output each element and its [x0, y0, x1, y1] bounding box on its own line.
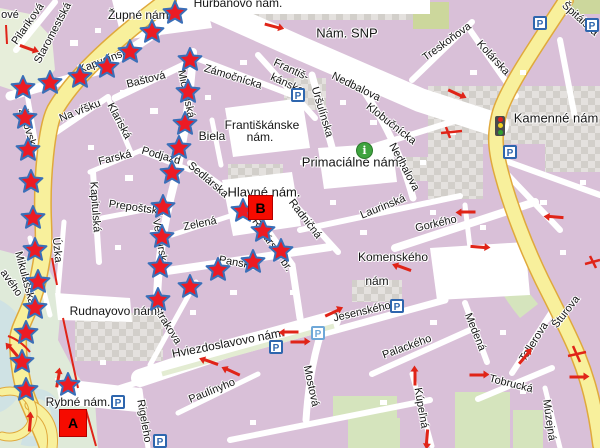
map-label: nám.	[247, 130, 274, 144]
star-marker-icon[interactable]	[147, 254, 173, 280]
star-marker-icon[interactable]	[37, 70, 63, 96]
route-marker-a[interactable]: A	[59, 409, 87, 437]
parking-icon[interactable]: P	[291, 88, 305, 102]
map-label: nám	[365, 274, 388, 288]
map-label: Nám. SNP	[316, 26, 377, 41]
parking-icon[interactable]: P	[311, 326, 325, 340]
star-marker-icon[interactable]	[177, 274, 203, 300]
star-marker-icon[interactable]	[12, 105, 38, 131]
parking-icon[interactable]: P	[585, 18, 599, 32]
star-marker-icon[interactable]	[18, 169, 44, 195]
route-marker-b[interactable]: B	[248, 195, 273, 220]
star-marker-icon[interactable]	[205, 257, 231, 283]
one-way-arrow-icon	[291, 341, 306, 344]
star-marker-icon[interactable]	[268, 238, 294, 264]
map-label: ové	[1, 9, 19, 21]
one-way-arrow-icon	[570, 376, 585, 379]
map-viewport[interactable]: Hurbanovo nám.Župné nám.Nám. SNPovéPilar…	[0, 0, 600, 448]
parking-icon[interactable]: P	[390, 299, 404, 313]
parking-icon[interactable]: P	[269, 340, 283, 354]
star-marker-icon[interactable]	[166, 135, 192, 161]
parking-icon[interactable]: P	[111, 395, 125, 409]
star-marker-icon[interactable]	[13, 377, 39, 403]
star-marker-icon[interactable]	[175, 79, 201, 105]
one-way-arrow-icon	[461, 211, 476, 214]
star-marker-icon[interactable]	[10, 75, 36, 101]
star-marker-icon[interactable]	[145, 287, 171, 313]
parking-icon[interactable]: P	[153, 434, 167, 448]
map-label: Primaciálne nám.	[302, 155, 402, 170]
map-label: Kamenné nám	[514, 111, 599, 126]
parking-icon[interactable]: P	[503, 145, 517, 159]
map-label: Úzka	[50, 237, 65, 263]
star-marker-icon[interactable]	[22, 295, 48, 321]
star-marker-icon[interactable]	[22, 237, 48, 263]
map-label: Hurbanovo nám.	[194, 0, 283, 10]
star-marker-icon[interactable]	[55, 372, 81, 398]
info-icon[interactable]: i	[356, 142, 373, 159]
star-marker-icon[interactable]	[159, 160, 185, 186]
star-marker-icon[interactable]	[172, 111, 198, 137]
star-marker-icon[interactable]	[20, 205, 46, 231]
star-marker-icon[interactable]	[67, 64, 93, 90]
one-way-arrow-icon	[414, 371, 417, 386]
star-marker-icon[interactable]	[13, 320, 39, 346]
parking-icon[interactable]: P	[533, 16, 547, 30]
map-label: Biela	[199, 129, 226, 143]
star-marker-icon[interactable]	[15, 137, 41, 163]
star-marker-icon[interactable]	[9, 349, 35, 375]
star-marker-icon[interactable]	[149, 224, 175, 250]
star-marker-icon[interactable]	[162, 0, 188, 26]
star-marker-icon[interactable]	[25, 269, 51, 295]
star-marker-icon[interactable]	[240, 249, 266, 275]
one-way-arrow-icon	[470, 374, 485, 377]
star-marker-icon[interactable]	[150, 194, 176, 220]
one-way-arrow-icon	[284, 331, 299, 334]
traffic-light-icon	[495, 116, 505, 136]
star-marker-icon[interactable]	[177, 47, 203, 73]
